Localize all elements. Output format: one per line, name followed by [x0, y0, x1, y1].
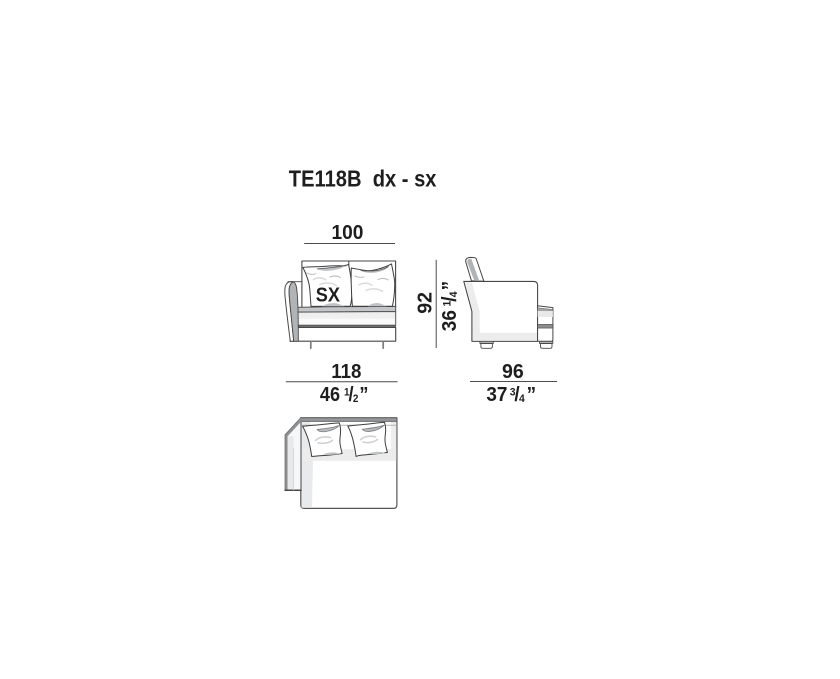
svg-text:96: 96 [502, 360, 524, 383]
svg-text:100: 100 [332, 221, 364, 244]
svg-text:118: 118 [331, 360, 361, 383]
svg-text:SX: SX [316, 283, 340, 306]
svg-text:TE118B dx - sx: TE118B dx - sx [289, 165, 437, 192]
svg-text:92: 92 [414, 292, 437, 314]
